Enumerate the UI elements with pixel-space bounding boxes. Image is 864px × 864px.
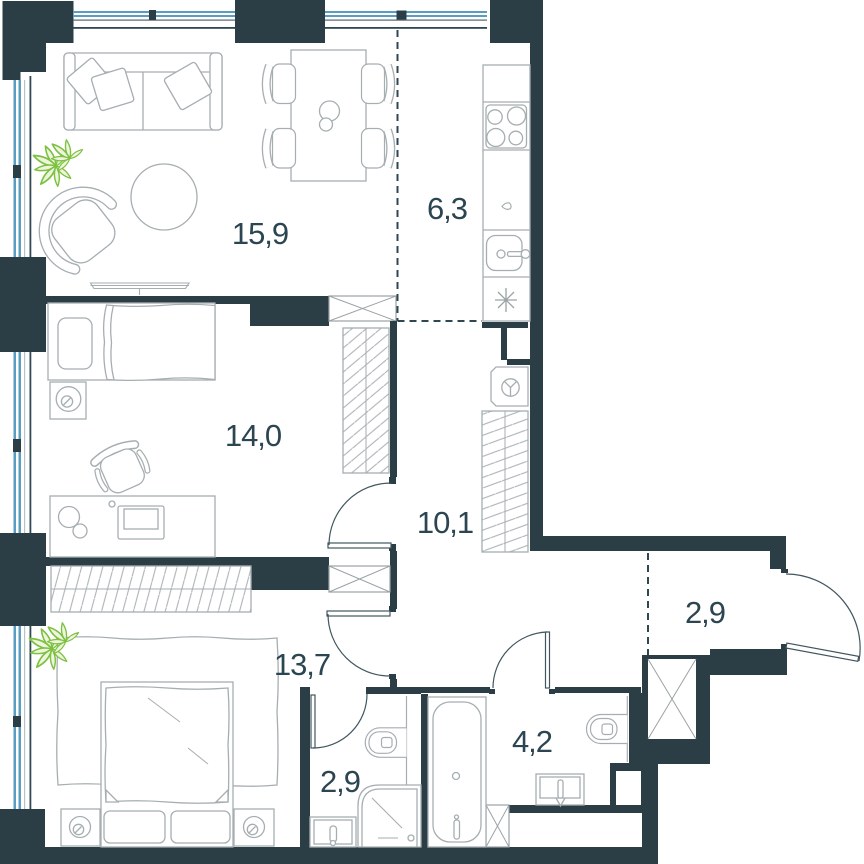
svg-text:2,9: 2,9	[685, 595, 725, 630]
svg-text:6,3: 6,3	[427, 191, 467, 226]
svg-text:2,9: 2,9	[320, 764, 360, 799]
svg-text:10,1: 10,1	[417, 505, 473, 540]
svg-text:15,9: 15,9	[232, 216, 288, 251]
svg-text:4,2: 4,2	[512, 724, 552, 759]
svg-text:14,0: 14,0	[225, 418, 282, 453]
svg-text:13,7: 13,7	[274, 647, 330, 682]
